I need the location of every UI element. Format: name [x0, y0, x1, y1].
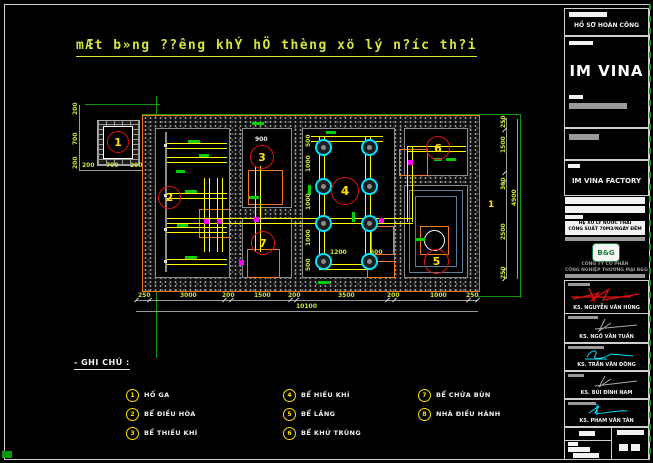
legend-label: BỂ HIẾU KHÍ — [301, 391, 350, 399]
valve — [217, 219, 222, 224]
legend-label: NHÀ ĐIỀU HÀNH — [436, 410, 501, 418]
dim-line — [136, 311, 478, 312]
project-title: HỆ XỬ LÝ NƯỚC THẢI CÔNG SUẤT 70M3/NGÀY Đ… — [565, 221, 645, 235]
pipe-node — [164, 144, 167, 147]
titleblock-brand-box: IM VINA — [564, 36, 649, 128]
signature-cyan — [573, 402, 643, 417]
table-divider — [611, 428, 612, 459]
air-pipe — [217, 178, 223, 252]
dim-label: 900 — [255, 137, 268, 143]
signer-name: KS. TRẦN VĂN ĐÔNG — [565, 362, 648, 368]
air-diffuser — [315, 215, 332, 232]
air-pipe — [167, 143, 227, 149]
text-bar — [565, 274, 645, 278]
pipe-label — [177, 224, 188, 227]
valve — [408, 160, 413, 165]
company-logo: B&G — [592, 243, 620, 262]
dim-label: 500 — [306, 134, 312, 147]
equipment-box — [248, 170, 283, 205]
callout-2: 2 — [158, 186, 181, 209]
dim-label: 1500 — [254, 293, 271, 299]
legend-num: 8 — [418, 408, 431, 421]
dim-label: 200 — [288, 293, 301, 299]
text-bar — [565, 215, 583, 219]
dim-label: 200 — [73, 102, 79, 115]
signature-gray — [575, 317, 641, 334]
text-bar — [568, 164, 580, 168]
drawing-title: mÆt b»ng ??êng khÝ hÖ thèng xö lý n?íc t… — [76, 38, 477, 57]
dim-label: 2500 — [501, 223, 507, 240]
text-bar — [569, 95, 583, 99]
signature-cyan — [573, 347, 643, 362]
dim-line — [79, 105, 80, 171]
signer-name: KS. BÙI ĐÌNH NAM — [565, 390, 648, 396]
text-bar — [569, 103, 627, 109]
signer-name: KS. NGÔ VĂN TUẤN — [565, 334, 648, 340]
dim-label: 1000 — [306, 155, 312, 172]
signature-box-3: KS. TRẦN VĂN ĐÔNG — [564, 343, 649, 371]
dim-extension-line — [478, 296, 520, 297]
axis-centerline — [85, 104, 160, 105]
dim-label: 600 — [370, 250, 383, 256]
text-bar — [568, 442, 578, 446]
dim-extension-line — [520, 114, 521, 298]
legend-label: BỂ THIẾU KHÍ — [144, 429, 198, 437]
dim-label: 200 — [82, 163, 95, 169]
legend-label: BỂ CHỨA BÙN — [436, 391, 491, 399]
callout-3: 3 — [250, 145, 274, 169]
project-line2: CÔNG SUẤT 70M3/NGÀY ĐÊM — [565, 227, 645, 233]
callout-7: 7 — [251, 231, 275, 255]
legend-label: BỂ KHỬ TRÙNG — [301, 429, 361, 437]
legend-num: 7 — [418, 389, 431, 402]
legend-label: BỂ LẮNG — [301, 410, 335, 418]
pipe-label — [249, 196, 259, 199]
company-line2: CÔNG NGHIỆP THƯƠNG MẠI B&G — [565, 268, 645, 274]
pipe-label — [415, 238, 425, 241]
legend-num: 2 — [126, 408, 139, 421]
air-diffuser — [361, 139, 378, 156]
text-bar — [568, 447, 590, 452]
dim-total-label: 4900 — [512, 189, 518, 206]
dim-line — [79, 170, 145, 171]
signature-box-2: KS. NGÔ VĂN TUẤN — [564, 313, 649, 343]
scale-value-bar — [579, 431, 595, 436]
legend-num: 4 — [283, 389, 296, 402]
air-pipe — [204, 178, 210, 252]
valve — [204, 219, 209, 224]
equipment-box — [399, 149, 428, 176]
text-bar — [565, 197, 645, 204]
signer-name: KS. NGUYỄN VĂN HÙNG — [565, 305, 648, 311]
valve — [239, 260, 244, 265]
dim-label: 700 — [106, 163, 119, 169]
sheet-number-bar — [619, 444, 628, 451]
signature-box-5: KS. PHAM VĂN TÂN — [564, 399, 649, 427]
pipe-label — [446, 158, 456, 161]
legend-num: 6 — [283, 427, 296, 440]
company-name: CÔNG TY CỔ PHẦN CÔNG NGHIỆP THƯƠNG MẠI B… — [565, 262, 645, 273]
dim-label: 3000 — [180, 293, 197, 299]
text-bar — [565, 206, 645, 213]
dim-label: 1200 — [330, 250, 347, 256]
center-well — [424, 230, 445, 251]
titleblock-factory-box: IM VINA FACTORY — [564, 160, 649, 196]
dim-label: 250 — [501, 115, 507, 128]
dim-label: 700 — [73, 132, 79, 145]
text-bar — [565, 237, 645, 241]
corner-mark — [2, 451, 12, 458]
signature-box-4: KS. BÙI ĐÌNH NAM — [564, 371, 649, 399]
pipe-label — [188, 140, 200, 143]
dim-label: 200 — [130, 163, 143, 169]
dim-label: 200 — [222, 293, 235, 299]
pipe-label — [326, 131, 336, 134]
pipe-label — [352, 212, 355, 222]
pipe-label — [199, 154, 209, 157]
callout-6: 6 — [426, 136, 450, 160]
dim-label: 1000 — [306, 193, 312, 210]
table-divider — [565, 440, 611, 441]
pipe-node — [164, 260, 167, 263]
dim-line — [136, 300, 478, 301]
dim-label: 200 — [387, 293, 400, 299]
pipe-label — [318, 281, 330, 284]
pipe-node — [164, 228, 167, 231]
dim-total-label: 10100 — [296, 304, 317, 310]
pipe-label — [252, 122, 264, 125]
dim-label: 1000 — [306, 229, 312, 246]
dim-label: 200 — [73, 156, 79, 169]
titleblock-header-box: HỒ SƠ HOÀN CÔNG — [564, 8, 649, 36]
pipe-label — [176, 170, 185, 173]
signature-gray — [579, 374, 641, 390]
sheet-border-green — [649, 4, 651, 459]
air-diffuser — [315, 178, 332, 195]
dim-label: 300 — [501, 177, 507, 190]
signature-red — [569, 285, 643, 305]
text-bar — [569, 41, 593, 45]
legend-num: 5 — [283, 408, 296, 421]
dim-label: 250 — [501, 266, 507, 279]
dim-label: 500 — [306, 258, 312, 271]
signature-box-1: KS. NGUYỄN VĂN HÙNG — [564, 280, 649, 314]
legend-num: 1 — [126, 389, 139, 402]
legend-label: BỂ ĐIỀU HÒA — [144, 410, 196, 418]
dim-label: 1500 — [501, 136, 507, 153]
axis-label: 1 — [488, 200, 494, 210]
air-pipe — [407, 147, 413, 222]
callout-1: 1 — [107, 131, 129, 153]
valve — [379, 218, 384, 223]
text-bar — [569, 134, 599, 140]
factory-name: IM VINA FACTORY — [565, 177, 648, 185]
air-diffuser — [361, 178, 378, 195]
legend-num: 3 — [126, 427, 139, 440]
dim-label: 250 — [138, 293, 151, 299]
text-bar — [573, 453, 599, 458]
titleblock-header: HỒ SƠ HOÀN CÔNG — [565, 22, 648, 29]
dim-label: 1000 — [430, 293, 447, 299]
air-diffuser — [361, 215, 378, 232]
signer-name: KS. PHAM VĂN TÂN — [565, 418, 648, 424]
valve — [254, 217, 259, 222]
text-bar — [569, 12, 607, 17]
air-pipe — [167, 259, 227, 265]
titleblock-section — [564, 128, 649, 160]
sheet-number-bar — [631, 444, 640, 451]
callout-4: 4 — [331, 177, 359, 205]
drawing-number-bar — [617, 430, 644, 435]
air-diffuser — [315, 139, 332, 156]
cad-sheet: mÆt b»ng ??êng khÝ hÖ thèng xö lý n?íc t… — [0, 0, 653, 463]
pipe-label — [185, 256, 197, 259]
brand-name: IM VINA — [565, 62, 648, 80]
dim-label: 3500 — [338, 293, 355, 299]
pipe-label — [185, 190, 197, 193]
legend-label: HỐ GA — [144, 391, 170, 399]
callout-5: 5 — [424, 249, 449, 274]
air-pipe — [167, 157, 227, 163]
titleblock-bottom-table — [564, 427, 649, 460]
dim-label: 250 — [466, 293, 479, 299]
legend-heading: - GHI CHÚ : — [74, 358, 130, 370]
